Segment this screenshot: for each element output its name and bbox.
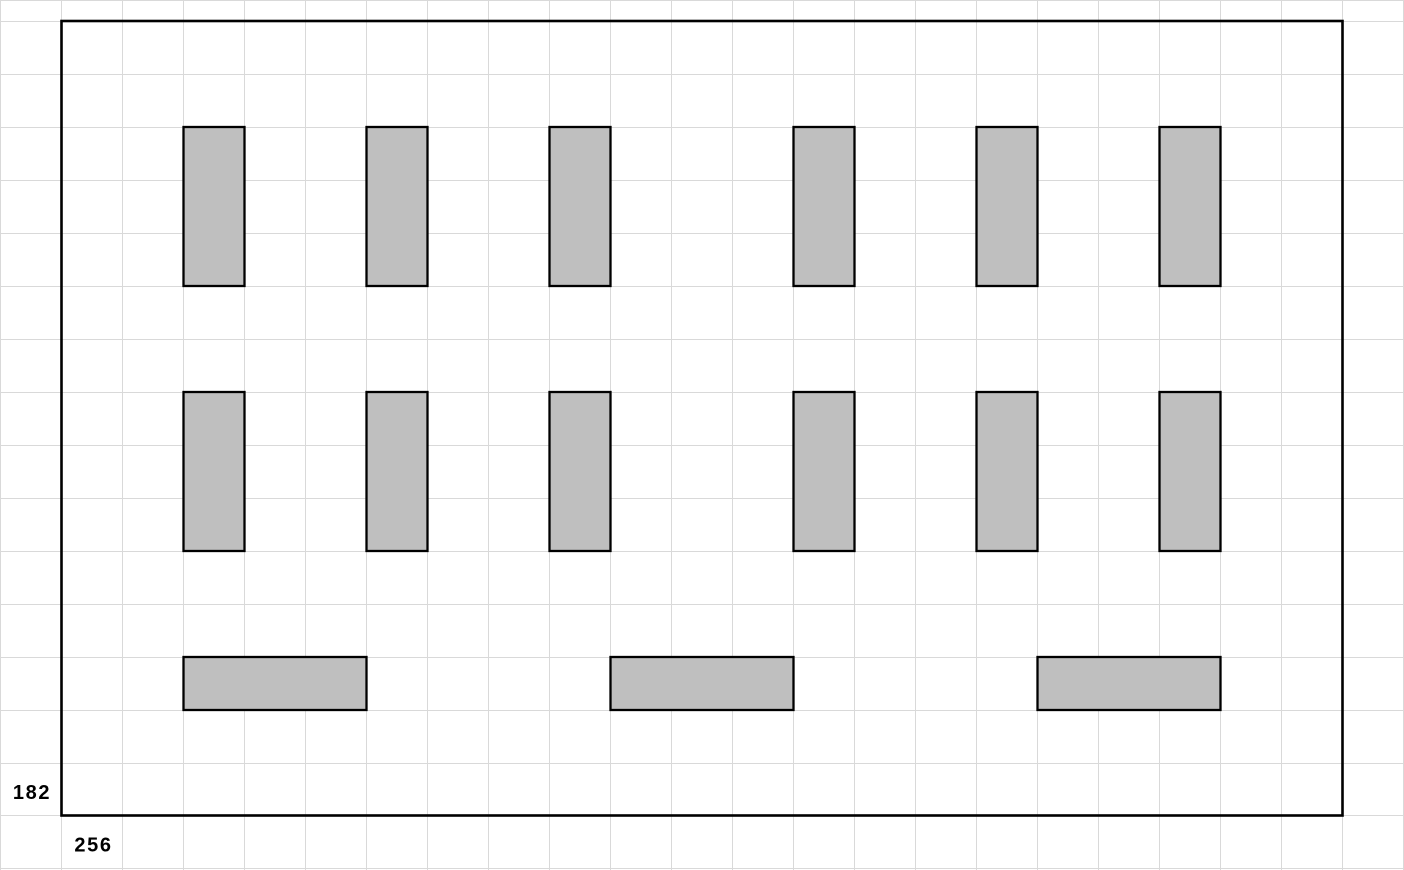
svg-text:256: 256 (74, 835, 112, 857)
svg-text:182: 182 (13, 782, 51, 804)
